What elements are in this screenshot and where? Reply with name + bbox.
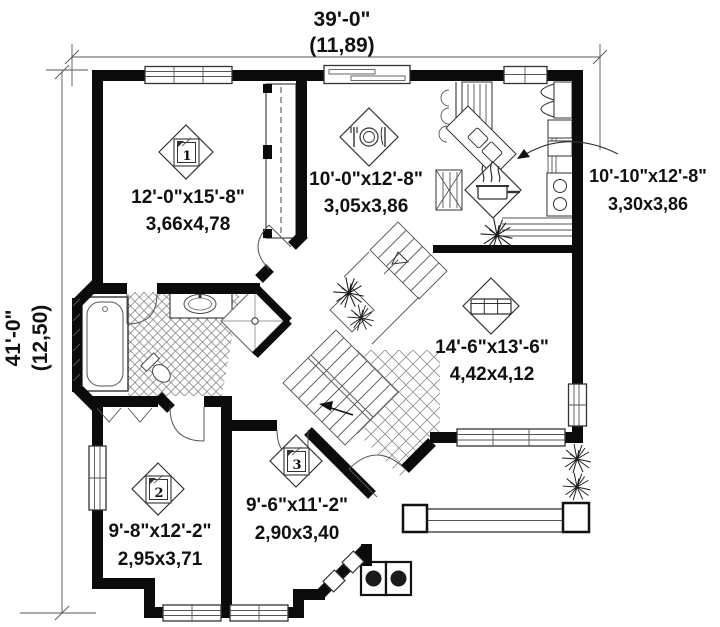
porch-post (563, 503, 589, 532)
room-label-kitchen-imperial: 10'-10"x12'-8" (589, 166, 707, 186)
badge-number: 2 (154, 486, 163, 501)
room-label-bedroom2-imperial: 9'-8"x12'-2" (108, 521, 211, 542)
window-kitchen-top (504, 67, 547, 84)
room-label-dining-imperial: 10'-0"x12'-8" (309, 169, 423, 190)
window-living-bottom (457, 429, 565, 446)
room-label-bedroom1-imperial: 12'-0"x15'-8" (131, 187, 245, 208)
window-bedroom2-bottom (163, 605, 221, 621)
room-badge-bedroom-1: 1 (159, 125, 213, 179)
badge-number: 1 (182, 149, 191, 164)
kitchen-peninsula (439, 82, 516, 176)
room-label-bedroom1-metric: 3,66x4,78 (146, 214, 231, 235)
dim-height-meters: (12,50) (29, 305, 52, 372)
room-label-kitchen-metric: 3,30x3,86 (608, 194, 688, 214)
window-bedroom1-top (145, 67, 232, 84)
vanity-sink (170, 291, 232, 318)
bathtub (82, 297, 128, 391)
badge-number: 3 (292, 458, 301, 473)
window-living-right (569, 384, 587, 426)
dim-width-feet: 39'-0" (314, 8, 371, 31)
window-dining-top (324, 66, 410, 84)
plant-icon (333, 277, 363, 307)
room-label-living-imperial: 14'-6"x13'-6" (435, 337, 549, 358)
window-bedroom2-left (89, 446, 106, 510)
room-label-living-metric: 4,42x4,12 (450, 364, 535, 385)
dim-width-meters: (11,89) (309, 34, 374, 57)
floor-plan-drawing: 39'-0" (11,89) 41'-0" (12,50) (0, 0, 720, 627)
floor-plan: 39'-0" (11,89) 41'-0" (12,50) (0, 0, 720, 627)
closet-bedroom1 (263, 84, 296, 238)
kitchen-island (436, 170, 462, 210)
porch (403, 444, 591, 532)
plant-icon (562, 444, 591, 473)
stoop-columns (361, 562, 411, 595)
room-label-bedroom3-imperial: 9'-6"x11'-2" (246, 495, 348, 516)
kitchen-counter (502, 120, 578, 236)
stove (547, 173, 573, 216)
sofa-icon (471, 299, 511, 314)
dim-height-feet: 41'-0" (2, 310, 25, 367)
refrigerator (541, 82, 572, 118)
window-bedroom3-bottom (230, 605, 288, 621)
room-label-bedroom3-metric: 2,90x3,40 (255, 523, 340, 544)
room-label-dining-metric: 3,05x3,86 (324, 196, 409, 217)
porch-post (403, 505, 427, 532)
room-badge-kitchen (465, 162, 521, 218)
stairs-basement (344, 222, 447, 344)
room-badge-dining (340, 108, 398, 166)
closet-bifold-doors-bedroom2 (97, 408, 152, 422)
plant-icon (348, 305, 374, 331)
room-badge-bedroom-2: 2 (132, 463, 184, 515)
bar-stools (439, 90, 449, 142)
stair-planter (330, 277, 374, 332)
room-label-bedroom2-metric: 2,95x3,71 (118, 549, 203, 570)
room-badge-living (463, 278, 519, 334)
plant-icon (563, 473, 591, 501)
door-bedroom2 (170, 407, 204, 441)
